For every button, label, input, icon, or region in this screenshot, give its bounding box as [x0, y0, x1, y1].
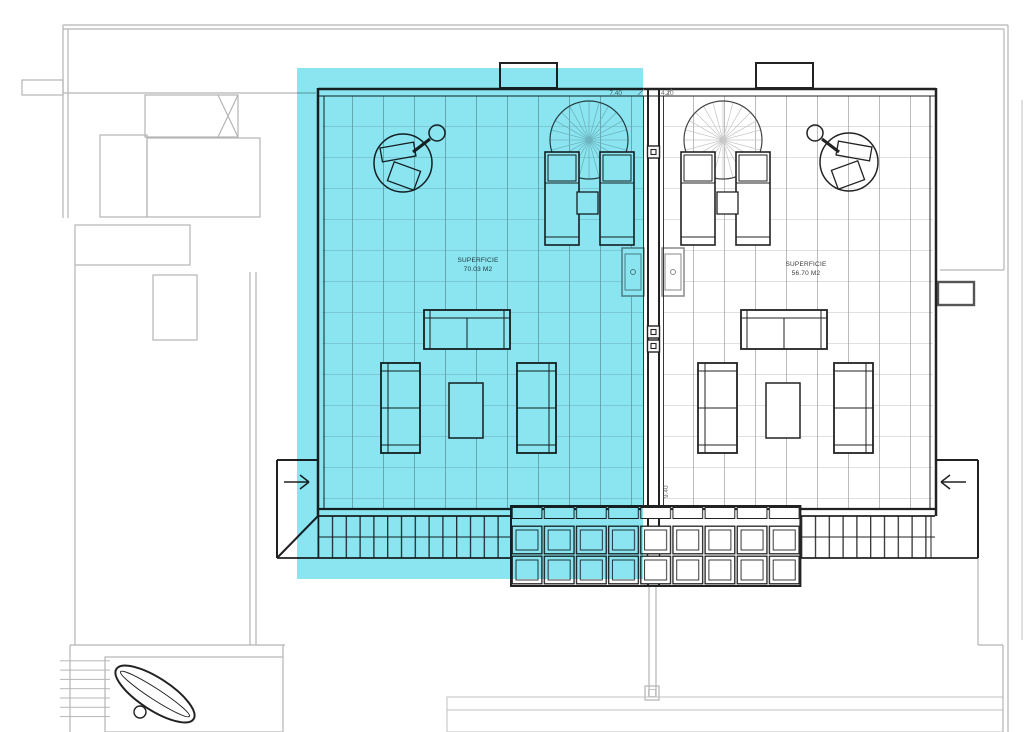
entry-arrow-right: [941, 475, 966, 489]
dim-right-width: 4.10: [661, 90, 674, 97]
ac-unit-right: [662, 248, 684, 296]
ac-unit-facade: [938, 282, 974, 305]
background-stairs-upper-left: [60, 95, 260, 722]
dim-depth: 9.40: [663, 485, 670, 498]
coffee-table-right: [766, 383, 800, 438]
highlight-overlay-left-unit[interactable]: [297, 68, 643, 579]
satellite-dish: [105, 656, 283, 732]
floorplan-svg: 7.40 4.10 9.40 SUPERFICIE 70.03 M2 SUPER…: [0, 0, 1024, 732]
divider-posts: [648, 146, 660, 557]
area-value-right: 56.70 M2: [792, 270, 821, 277]
floorplan-page: 7.40 4.10 9.40 SUPERFICIE 70.03 M2 SUPER…: [0, 0, 1024, 732]
area-label-right: SUPERFICIE: [785, 261, 826, 268]
chimney-right: [756, 63, 813, 88]
